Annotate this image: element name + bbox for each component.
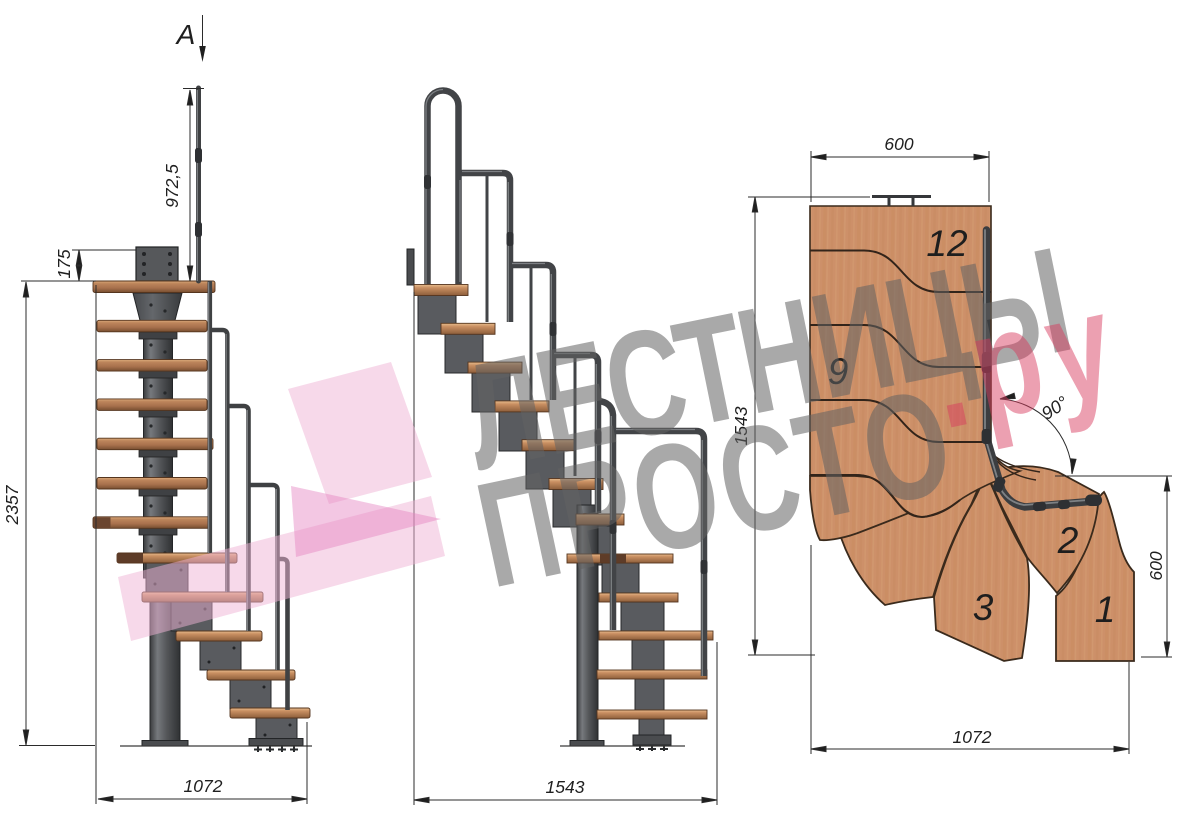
svg-text:3: 3 xyxy=(973,587,994,628)
svg-text:600: 600 xyxy=(884,134,913,154)
svg-text:972,5: 972,5 xyxy=(162,164,182,208)
svg-text:1072: 1072 xyxy=(953,727,992,747)
svg-text:1543: 1543 xyxy=(546,777,585,797)
svg-text:1: 1 xyxy=(1095,589,1116,630)
svg-text:2357: 2357 xyxy=(2,484,22,525)
svg-text:175: 175 xyxy=(54,249,74,278)
svg-text:1072: 1072 xyxy=(184,776,223,796)
svg-text:A: A xyxy=(175,19,196,50)
svg-text:600: 600 xyxy=(1146,551,1166,580)
svg-text:2: 2 xyxy=(1057,520,1079,561)
